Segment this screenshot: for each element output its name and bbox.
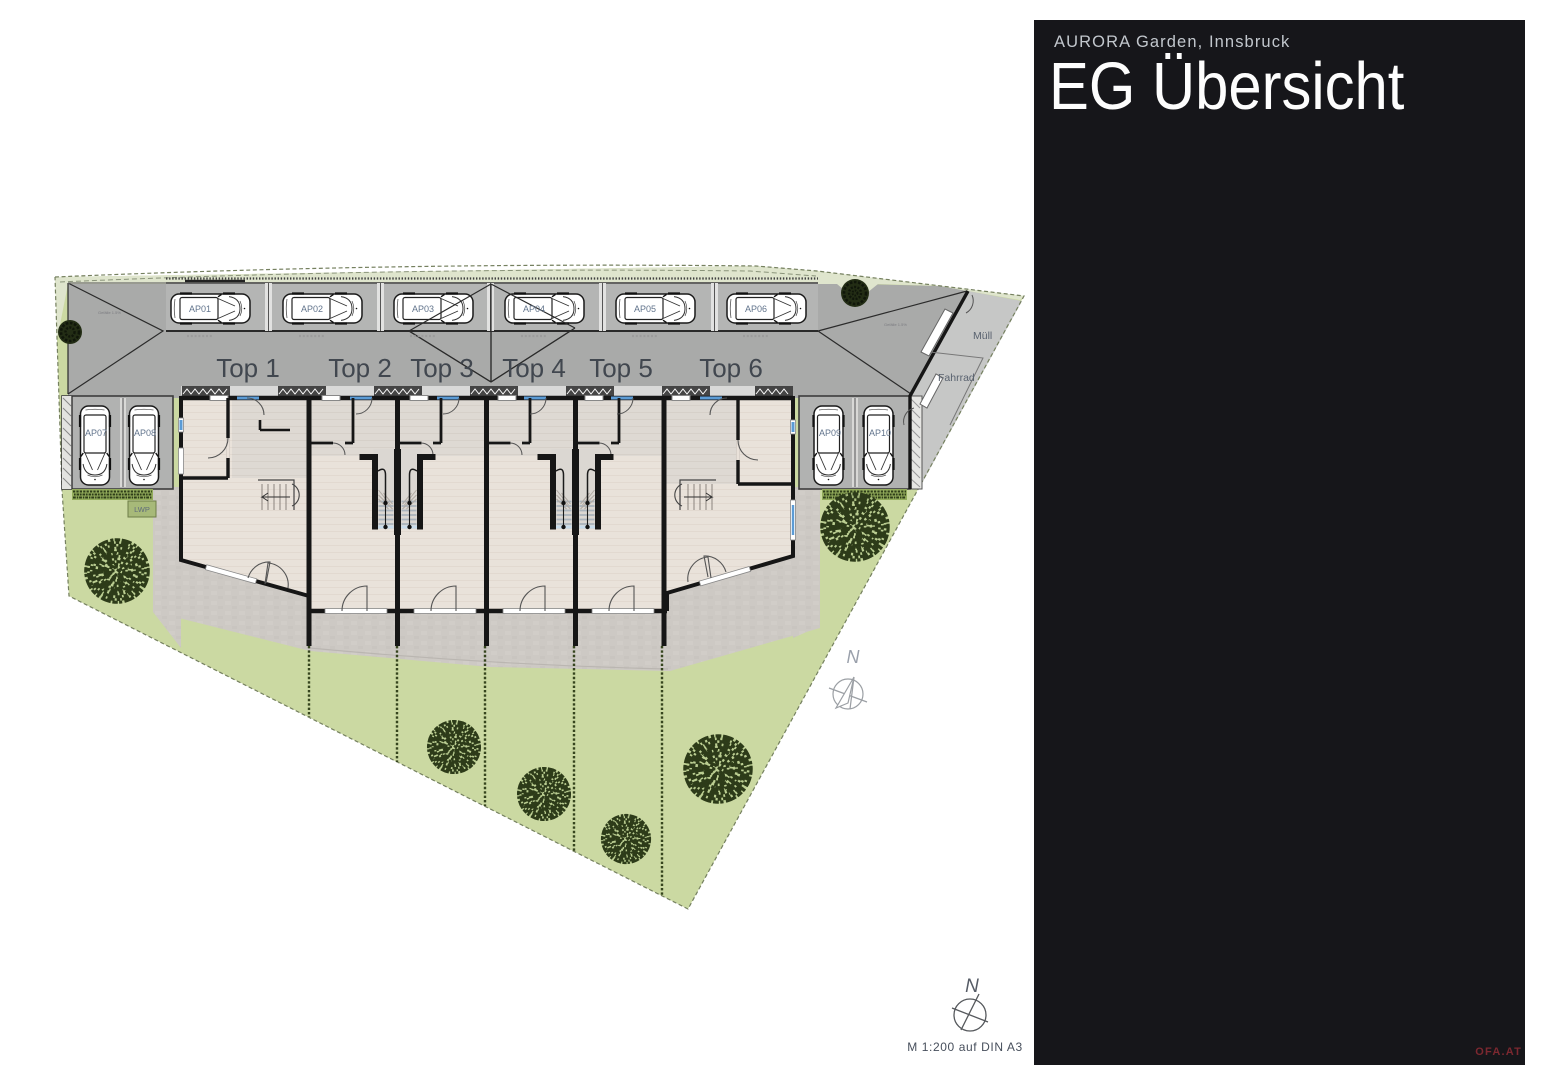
svg-text:AP02: AP02 (301, 304, 323, 314)
svg-text:Top 5: Top 5 (589, 353, 653, 383)
svg-text:AP07: AP07 (85, 428, 107, 438)
svg-text:Top 6: Top 6 (699, 353, 763, 383)
svg-text:Top 2: Top 2 (328, 353, 392, 383)
svg-text:AP04: AP04 (523, 304, 545, 314)
svg-text:AP01: AP01 (189, 304, 211, 314)
svg-text:Gefälle 1.5%: Gefälle 1.5% (98, 310, 121, 315)
svg-text:AP05: AP05 (634, 304, 656, 314)
svg-text:AP10: AP10 (869, 428, 891, 438)
svg-text:Top 3: Top 3 (410, 353, 474, 383)
svg-text:LWP: LWP (134, 505, 150, 514)
svg-text:Gefälle 1.5%: Gefälle 1.5% (884, 322, 907, 327)
svg-text:Müll: Müll (973, 330, 992, 342)
svg-text:Fahrrad: Fahrrad (938, 372, 975, 384)
svg-text:M 1:200 auf DIN A3: M 1:200 auf DIN A3 (907, 1040, 1023, 1054)
svg-text:AP03: AP03 (412, 304, 434, 314)
svg-text:AP08: AP08 (134, 428, 156, 438)
svg-text:N: N (965, 976, 979, 997)
svg-text:AP06: AP06 (745, 304, 767, 314)
svg-text:N: N (847, 647, 861, 667)
svg-text:Top 4: Top 4 (502, 353, 566, 383)
svg-text:Top 1: Top 1 (216, 353, 280, 383)
svg-text:AP09: AP09 (819, 428, 841, 438)
